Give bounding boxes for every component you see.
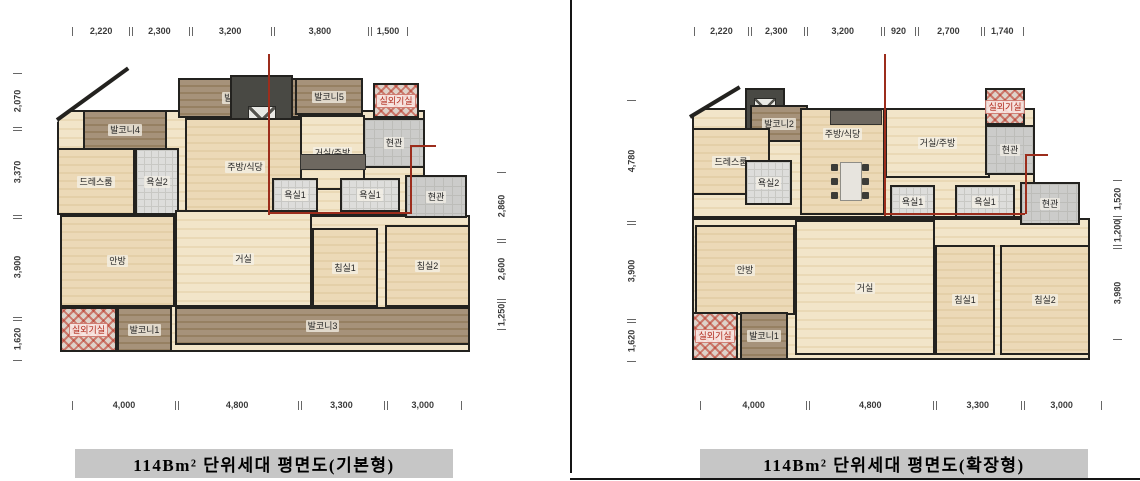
dim-tick — [271, 27, 272, 36]
room-label-outdoor-unit-top: 실외기실 — [376, 94, 415, 108]
caption-extended-text: 114Bm² 단위세대 평면도(확장형) — [763, 451, 1024, 476]
dim-tick — [497, 172, 506, 173]
room-entry-upper: 현관 — [985, 125, 1035, 175]
dim-tick — [497, 239, 506, 240]
chair-icon — [831, 192, 838, 199]
dim-tick — [627, 361, 636, 362]
room-label-bed1: 침실1 — [332, 262, 358, 274]
room-bed1: 침실1 — [312, 228, 378, 307]
dim-value: 3,370 — [6, 128, 29, 215]
dim-tick — [407, 27, 408, 36]
plan-basic: 발코니4 발코니2 발코니5 실외기실 드레스룸 욕실2 주방/식당 거실/주방… — [57, 68, 480, 362]
room-bed1: 침실1 — [935, 245, 995, 355]
room-bath1b: 욕실1 — [340, 178, 400, 212]
room-living: 거실 — [175, 210, 312, 307]
room-entry-lower: 현관 — [405, 175, 467, 218]
room-label-living-kitchen: 거실/주방 — [918, 137, 958, 149]
dim-value: 3,000 — [385, 400, 461, 410]
chair-icon — [862, 178, 869, 185]
dim-tick — [748, 27, 749, 36]
chair-icon — [831, 164, 838, 171]
dim-tick — [368, 27, 369, 36]
room-label-entry-upper: 현관 — [384, 137, 405, 149]
dim-value: 4,000 — [73, 400, 175, 410]
dim-left-basic: 2,070 3,370 3,900 1,620 — [10, 73, 24, 361]
dim-tick — [129, 27, 130, 36]
dim-value: 2,220 — [695, 26, 748, 36]
room-entry-lower: 현관 — [1020, 182, 1080, 225]
room-label-living: 거실 — [855, 282, 876, 294]
dim-bottom-extended: 4,000 4,800 3,300 3,000 — [700, 398, 1102, 412]
room-label-balcony1: 발코니1 — [747, 330, 781, 342]
chair-icon — [862, 192, 869, 199]
dim-tick — [13, 317, 22, 318]
dim-value: 1,620 — [620, 320, 643, 361]
dim-tick — [694, 27, 695, 36]
chair-icon — [862, 164, 869, 171]
dim-value: 2,070 — [6, 74, 29, 127]
room-label-bath1a: 욕실1 — [900, 196, 926, 208]
dim-tick — [1113, 216, 1122, 217]
caption-extended: 114Bm² 단위세대 평면도(확장형) — [700, 449, 1088, 478]
dim-tick — [13, 127, 22, 128]
room-label-entry-lower: 현관 — [1040, 198, 1061, 210]
dim-tick — [981, 27, 982, 36]
dim-value: 2,220 — [73, 26, 129, 36]
dim-tick — [700, 401, 701, 410]
room-label-balcony5: 발코니5 — [312, 91, 346, 103]
dim-tick — [915, 27, 916, 36]
dim-tick — [497, 329, 506, 330]
dim-top-extended: 2,220 2,300 3,200 920 2,700 1,740 — [694, 24, 1024, 38]
room-label-balcony4: 발코니4 — [108, 124, 142, 136]
room-label-bed1: 침실1 — [952, 294, 978, 306]
room-bed2: 침실2 — [1000, 245, 1090, 355]
room-outdoor-unit-top: 실외기실 — [373, 83, 419, 118]
dim-value: 3,200 — [805, 26, 881, 36]
room-bed2: 침실2 — [385, 225, 470, 307]
room-label-dressroom: 드레스룸 — [712, 156, 749, 168]
dim-value: 3,900 — [620, 222, 643, 320]
dim-value: 3,800 — [272, 26, 368, 36]
dim-value: 2,860 — [490, 173, 513, 239]
center-divider-line — [570, 0, 572, 473]
dim-tick — [1113, 339, 1122, 340]
dim-value: 3,300 — [299, 400, 383, 410]
dim-tick — [384, 401, 385, 410]
dim-tick — [804, 27, 805, 36]
room-label-bath2: 욕실2 — [756, 177, 782, 189]
room-bath2: 욕실2 — [135, 148, 179, 215]
caption-basic: 114Bm² 단위세대 평면도(기본형) — [75, 449, 453, 478]
unit-boundary-line — [410, 146, 412, 214]
dim-tick — [627, 221, 636, 222]
dim-tick — [933, 401, 934, 410]
dim-value: 1,740 — [982, 26, 1023, 36]
room-balcony3: 발코니3 — [175, 307, 470, 345]
dim-value: 2,600 — [490, 240, 513, 300]
unit-boundary-line — [1025, 154, 1048, 156]
room-label-master: 안방 — [107, 255, 128, 267]
dim-tick — [1023, 27, 1024, 36]
room-label-master: 안방 — [735, 264, 756, 276]
dim-right-basic: 2,860 2,600 1,250 — [494, 172, 508, 330]
dim-tick — [627, 100, 636, 101]
room-label-entry-lower: 현관 — [426, 191, 447, 203]
dim-tick — [806, 401, 807, 410]
dim-tick — [881, 27, 882, 36]
unit-boundary-line — [884, 54, 886, 216]
dim-value: 3,300 — [934, 400, 1021, 410]
room-balcony5: 발코니5 — [295, 78, 363, 115]
dim-tick — [189, 27, 190, 36]
dim-tick — [627, 319, 636, 320]
room-master: 안방 — [695, 225, 795, 315]
floorplan-sheet: 발코니4 발코니2 발코니5 실외기실 드레스룸 욕실2 주방/식당 거실/주방… — [0, 0, 1140, 481]
room-balcony4: 발코니4 — [83, 110, 167, 150]
dim-value: 1,520 — [1106, 181, 1129, 216]
dim-value: 3,000 — [1022, 400, 1101, 410]
plan-extended: 발코니2 주방/식당 드레스룸 욕실2 거실/주방 실외기실 현관 욕실1 욕실… — [690, 80, 1100, 362]
dim-tick — [72, 27, 73, 36]
room-master: 안방 — [60, 215, 175, 307]
dim-tick — [175, 401, 176, 410]
dim-bottom-basic: 4,000 4,800 3,300 3,000 — [72, 398, 462, 412]
dim-tick — [1113, 245, 1122, 246]
room-label-outdoor-unit-top: 실외기실 — [985, 100, 1024, 114]
room-bath2: 욕실2 — [745, 160, 792, 205]
unit-boundary-line — [268, 212, 412, 214]
dim-value: 2,700 — [916, 26, 980, 36]
room-label-outdoor-unit-bottom: 실외기실 — [69, 323, 108, 337]
dim-value: 920 — [882, 26, 915, 36]
dim-tick — [13, 360, 22, 361]
unit-boundary-line — [884, 213, 1025, 215]
dim-tick — [298, 401, 299, 410]
dim-right-extended: 1,520 1,200 3,980 — [1110, 180, 1124, 340]
room-label-bath1a: 욕실1 — [282, 189, 308, 201]
room-dressroom: 드레스룸 — [57, 148, 135, 215]
dim-value: 1,250 — [490, 300, 513, 329]
unit-boundary-line — [410, 145, 436, 147]
dim-tick — [13, 73, 22, 74]
room-balcony1: 발코니1 — [117, 307, 172, 352]
room-living: 거실 — [795, 220, 935, 355]
dim-value: 3,980 — [1106, 246, 1129, 339]
room-label-bed2: 침실2 — [415, 260, 441, 272]
dim-tick — [72, 401, 73, 410]
room-label-bath1b: 욕실1 — [357, 189, 383, 201]
dim-tick — [1101, 401, 1102, 410]
unit-boundary-line — [1025, 155, 1027, 214]
room-outdoor-unit-top: 실외기실 — [985, 88, 1025, 125]
dim-value: 4,800 — [176, 400, 298, 410]
room-label-kitchen-dining: 주방/식당 — [823, 128, 863, 140]
kitchen-counter — [830, 110, 882, 125]
unit-boundary-line — [268, 54, 270, 215]
room-bath1a: 욕실1 — [272, 178, 318, 212]
dim-tick — [13, 215, 22, 216]
room-label-dressroom: 드레스룸 — [77, 176, 114, 188]
dim-value: 2,300 — [130, 26, 188, 36]
dim-tick — [497, 299, 506, 300]
dim-value: 4,780 — [620, 101, 643, 221]
room-balcony1: 발코니1 — [740, 312, 788, 360]
dim-left-extended: 4,780 3,900 1,620 — [624, 100, 638, 362]
dim-tick — [461, 401, 462, 410]
room-label-balcony1: 발코니1 — [128, 324, 162, 336]
dim-value: 1,500 — [369, 26, 407, 36]
dim-top-basic: 2,220 2,300 3,200 3,800 1,500 — [72, 24, 408, 38]
room-outdoor-unit-bottom: 실외기실 — [60, 307, 117, 352]
dim-value: 3,200 — [190, 26, 271, 36]
room-living-kitchen: 거실/주방 — [885, 108, 990, 178]
dim-value: 1,620 — [6, 318, 29, 360]
dining-table — [840, 162, 862, 201]
room-label-kitchen-dining: 주방/식당 — [225, 161, 265, 173]
dim-value: 2,300 — [749, 26, 804, 36]
room-label-bath1b: 욕실1 — [972, 196, 998, 208]
room-outdoor-unit-bottom: 실외기실 — [692, 312, 738, 360]
room-label-entry-upper: 현관 — [1000, 144, 1021, 156]
dim-tick — [1021, 401, 1022, 410]
room-label-bed2: 침실2 — [1032, 294, 1058, 306]
dim-tick — [1113, 180, 1122, 181]
room-label-living: 거실 — [233, 253, 254, 265]
dim-value: 3,900 — [6, 216, 29, 317]
chair-icon — [831, 178, 838, 185]
room-label-bath2: 욕실2 — [144, 176, 170, 188]
room-label-balcony3: 발코니3 — [306, 320, 340, 332]
room-entry-upper: 현관 — [363, 118, 425, 168]
dim-value: 1,200 — [1106, 217, 1129, 245]
kitchen-counter — [300, 154, 366, 170]
room-label-outdoor-unit-bottom: 실외기실 — [695, 329, 734, 343]
dim-value: 4,800 — [807, 400, 933, 410]
caption-basic-text: 114Bm² 단위세대 평면도(기본형) — [133, 451, 394, 476]
dim-value: 4,000 — [701, 400, 806, 410]
bottom-edge-line — [570, 478, 1140, 480]
